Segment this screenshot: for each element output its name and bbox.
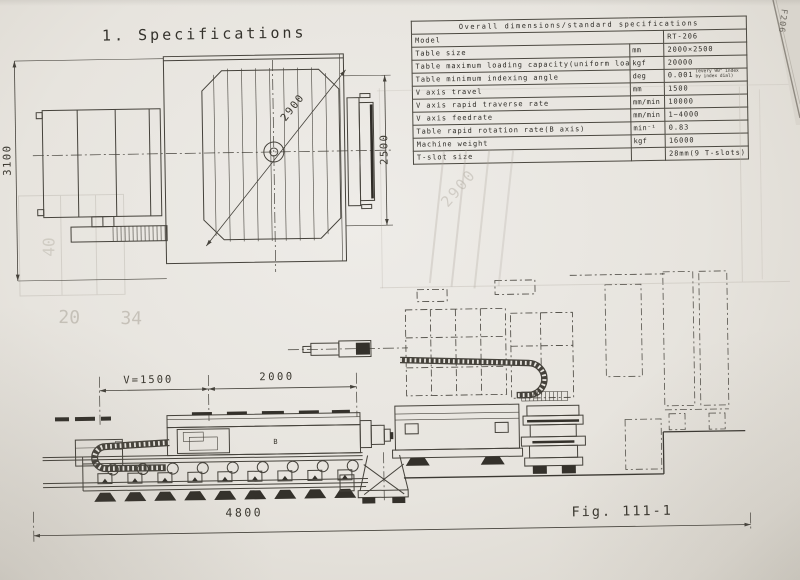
spec-unit: mm — [630, 43, 664, 57]
spec-item: T-slot size — [413, 148, 631, 164]
spec-unit: mm/min — [630, 95, 664, 109]
dim-v-travel-label: V=1500 — [123, 374, 173, 387]
elevation-drawing — [25, 262, 789, 544]
spec-unit: kgf — [631, 134, 665, 148]
spec-value: 20000 — [664, 55, 747, 69]
ghost-number: 2900 — [437, 166, 480, 211]
spec-table: Overall dimensions/standard specificatio… — [411, 16, 749, 165]
dim-table-width-label: 2500 — [378, 133, 390, 164]
spec-value: 28mm(9 T-slots) — [666, 146, 749, 160]
spec-value: 0.001(every 90° index by index dial) — [664, 68, 747, 82]
figure-label: Fig. 111-1 — [571, 503, 673, 521]
ghost-line — [429, 152, 445, 283]
plan-view-drawing — [1, 40, 405, 301]
spec-value: 0.83 — [665, 120, 748, 134]
spec-value: 2000×2500 — [664, 42, 747, 56]
spec-unit — [631, 147, 665, 161]
spec-unit: min⁻¹ — [631, 121, 665, 135]
spec-unit: mm — [630, 82, 664, 96]
spec-value: 16000 — [665, 133, 748, 147]
spec-value: 1~4000 — [665, 107, 748, 121]
spec-unit: kgf — [630, 56, 664, 70]
dim-overall-width-label: 3100 — [1, 144, 13, 175]
spec-unit: deg — [630, 69, 664, 83]
photographed-spec-page: { "page": { "title": "1. Specifications"… — [0, 0, 800, 580]
spec-value: 10000 — [665, 94, 748, 108]
spec-value-number: 0.001 — [668, 71, 694, 79]
spec-value: 1500 — [664, 81, 747, 95]
spec-unit: mm/min — [631, 108, 665, 122]
b-axis-label: B — [273, 438, 277, 446]
page-content: 1. Specifications Overall dimensions/sta… — [0, 0, 800, 580]
spec-value: RT-206 — [664, 29, 747, 43]
spec-value-note: (every 90° index by index dial) — [695, 70, 743, 80]
dim-overall-length-label: 4800 — [225, 505, 263, 520]
dim-span-label: 2000 — [259, 371, 294, 384]
